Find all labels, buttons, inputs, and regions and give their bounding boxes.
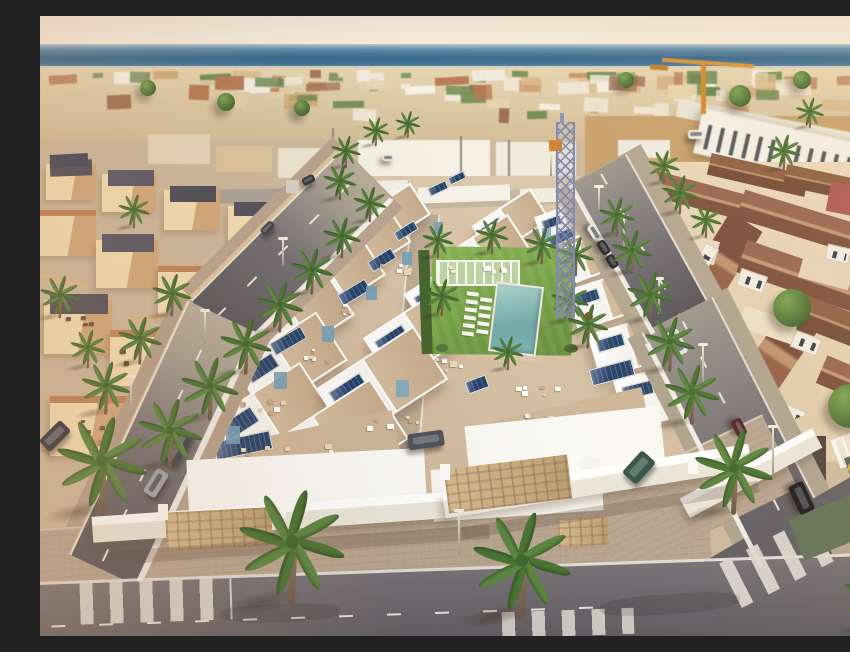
sunlight-overlay [40, 16, 850, 636]
sunlight-overlay-warm [40, 16, 850, 636]
aerial-photograph [40, 16, 850, 636]
light-overlay [40, 16, 850, 636]
